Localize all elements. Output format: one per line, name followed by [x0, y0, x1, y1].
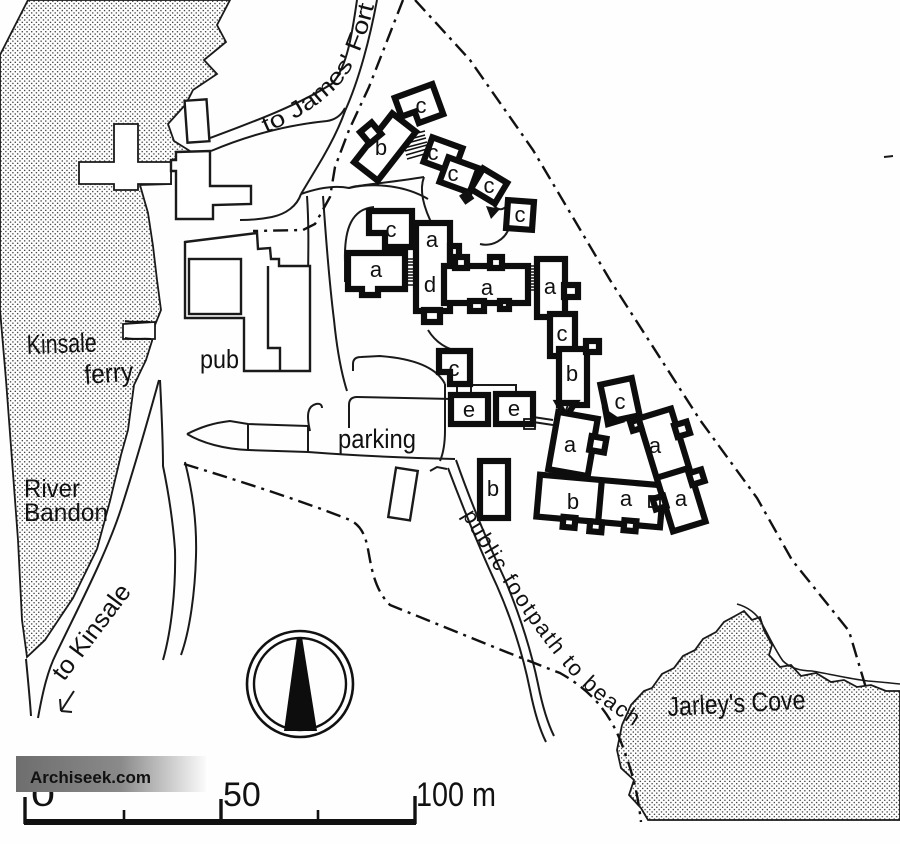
svg-text:ferry: ferry [83, 357, 134, 390]
svg-text:pub: pub [200, 344, 239, 374]
svg-text:a: a [649, 433, 662, 458]
svg-text:c: c [428, 140, 439, 165]
svg-text:a: a [544, 274, 557, 299]
svg-text:b: b [375, 135, 387, 160]
svg-text:100 m: 100 m [416, 776, 496, 814]
svg-text:50: 50 [223, 776, 261, 814]
svg-text:d: d [424, 272, 436, 297]
svg-text:c: c [484, 173, 495, 198]
svg-text:a: a [481, 275, 494, 300]
svg-text:c: c [448, 161, 459, 186]
svg-text:Kinsale: Kinsale [26, 328, 97, 360]
svg-text:c: c [449, 356, 460, 381]
svg-text:c: c [615, 389, 626, 414]
svg-text:e: e [463, 397, 475, 422]
svg-text:b: b [567, 489, 579, 514]
svg-text:c: c [386, 217, 397, 242]
svg-text:b: b [566, 361, 578, 386]
svg-text:a: a [370, 257, 383, 282]
svg-text:a: a [620, 486, 633, 511]
svg-text:a: a [426, 227, 439, 252]
svg-text:b: b [487, 476, 499, 501]
svg-text:parking: parking [338, 424, 416, 454]
svg-text:a: a [564, 432, 577, 457]
svg-text:c: c [557, 321, 568, 346]
svg-text:c: c [515, 202, 526, 227]
svg-text:Bandon: Bandon [24, 499, 108, 527]
svg-text:e: e [508, 396, 520, 421]
svg-text:Archiseek.com: Archiseek.com [30, 768, 151, 787]
svg-text:c: c [416, 93, 427, 118]
svg-text:a: a [675, 486, 688, 511]
